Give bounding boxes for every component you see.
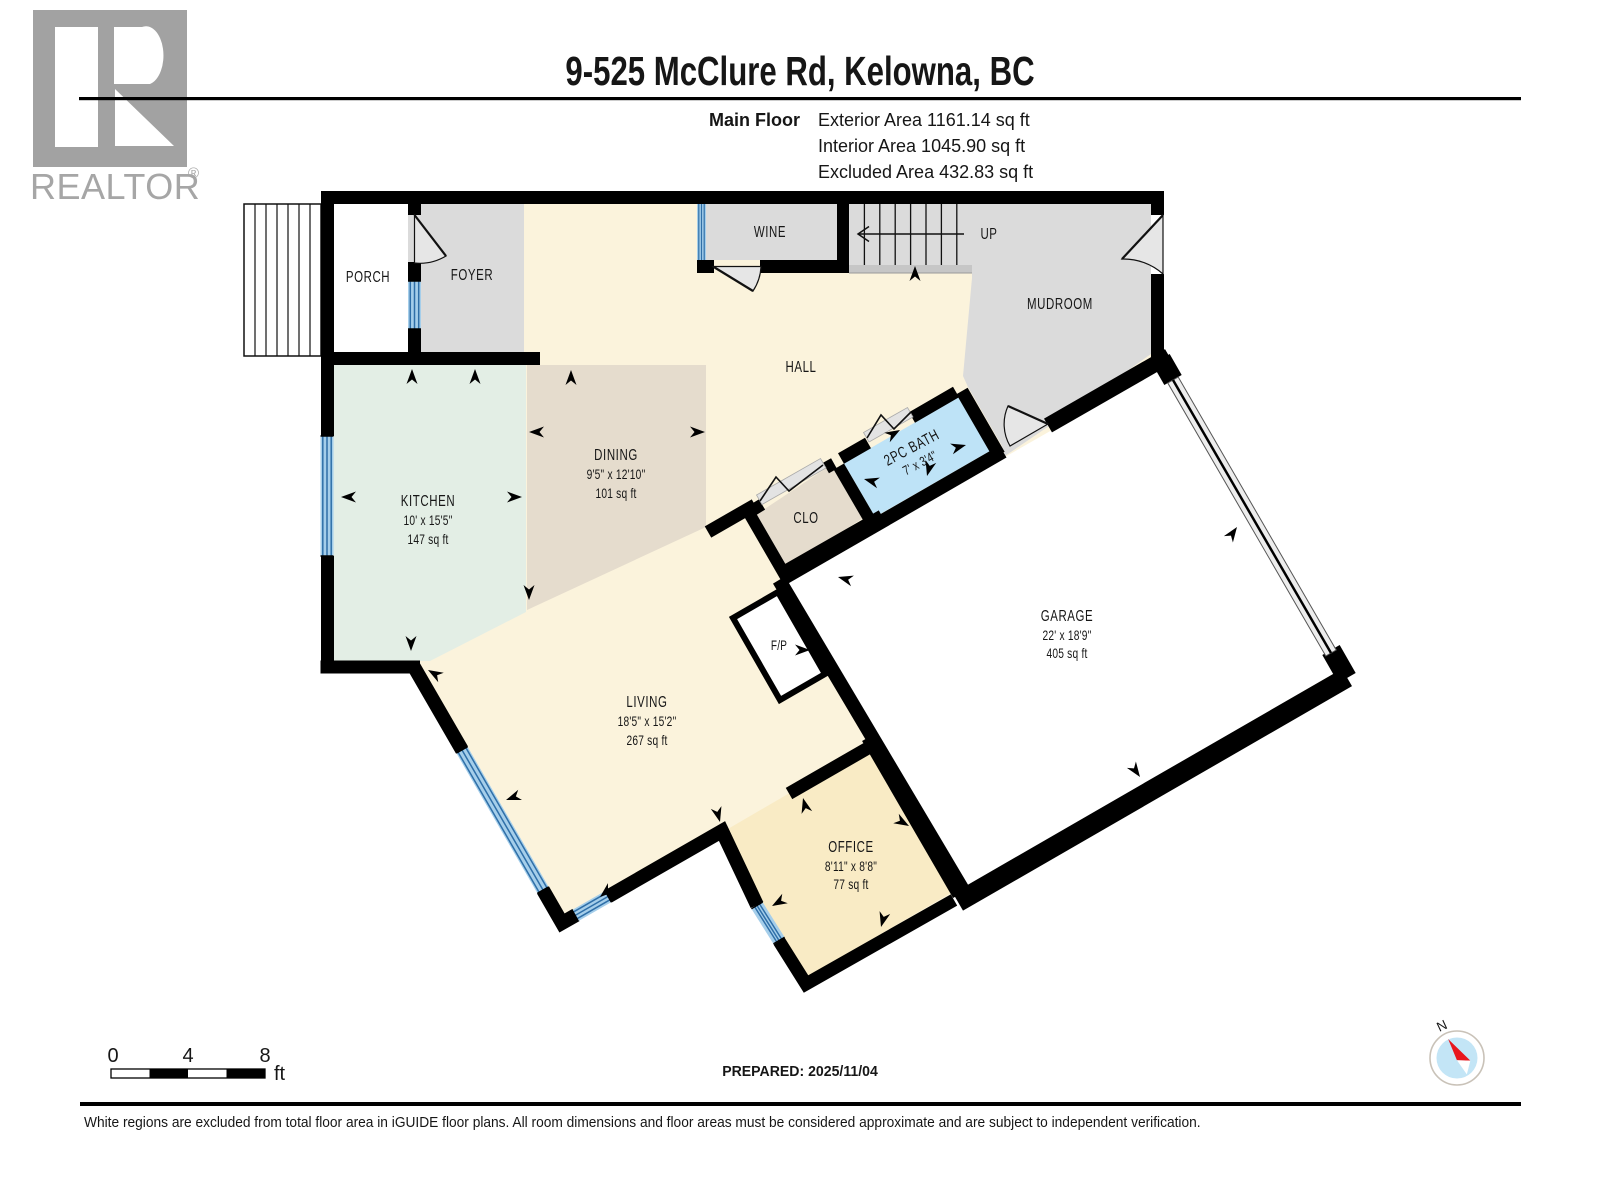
svg-text:147 sq ft: 147 sq ft [407, 531, 448, 547]
svg-text:18'5" x 15'2": 18'5" x 15'2" [618, 713, 677, 729]
svg-text:Interior Area 1045.90 sq ft: Interior Area 1045.90 sq ft [818, 136, 1025, 156]
svg-text:CLO: CLO [793, 509, 818, 526]
svg-text:OFFICE: OFFICE [828, 838, 874, 855]
svg-text:White regions are excluded fro: White regions are excluded from total fl… [84, 1114, 1201, 1131]
svg-text:9-525 McClure Rd, Kelowna, BC: 9-525 McClure Rd, Kelowna, BC [565, 48, 1034, 94]
svg-text:GARAGE: GARAGE [1041, 607, 1094, 624]
svg-text:ft: ft [274, 1063, 286, 1085]
svg-text:22' x 18'9": 22' x 18'9" [1042, 627, 1091, 643]
svg-text:F/P: F/P [771, 637, 787, 653]
svg-text:DINING: DINING [594, 446, 638, 463]
svg-text:77 sq ft: 77 sq ft [833, 876, 869, 892]
svg-text:®: ® [188, 165, 199, 182]
svg-text:Main Floor: Main Floor [709, 110, 800, 130]
svg-text:Excluded Area 432.83 sq ft: Excluded Area 432.83 sq ft [818, 162, 1033, 182]
svg-text:10' x 15'5": 10' x 15'5" [403, 512, 452, 528]
svg-text:405 sq ft: 405 sq ft [1046, 645, 1087, 661]
svg-text:PORCH: PORCH [346, 268, 390, 285]
svg-text:9'5" x 12'10": 9'5" x 12'10" [587, 466, 646, 482]
svg-text:HALL: HALL [785, 358, 816, 375]
svg-text:101 sq ft: 101 sq ft [595, 485, 636, 501]
svg-text:8'11" x 8'8": 8'11" x 8'8" [825, 858, 877, 874]
svg-text:PREPARED: 2025/11/04: PREPARED: 2025/11/04 [722, 1064, 878, 1080]
svg-text:LIVING: LIVING [626, 693, 667, 710]
svg-text:Exterior Area 1161.14 sq ft: Exterior Area 1161.14 sq ft [818, 110, 1030, 130]
svg-text:REALTOR: REALTOR [30, 166, 200, 207]
svg-text:KITCHEN: KITCHEN [401, 492, 455, 509]
svg-text:4: 4 [182, 1045, 193, 1067]
svg-text:8: 8 [259, 1045, 270, 1067]
svg-text:0: 0 [107, 1045, 118, 1067]
svg-text:WINE: WINE [754, 223, 786, 240]
svg-text:FOYER: FOYER [451, 266, 493, 283]
svg-text:UP: UP [980, 225, 997, 242]
svg-text:267 sq ft: 267 sq ft [626, 732, 667, 748]
svg-text:MUDROOM: MUDROOM [1027, 295, 1093, 312]
